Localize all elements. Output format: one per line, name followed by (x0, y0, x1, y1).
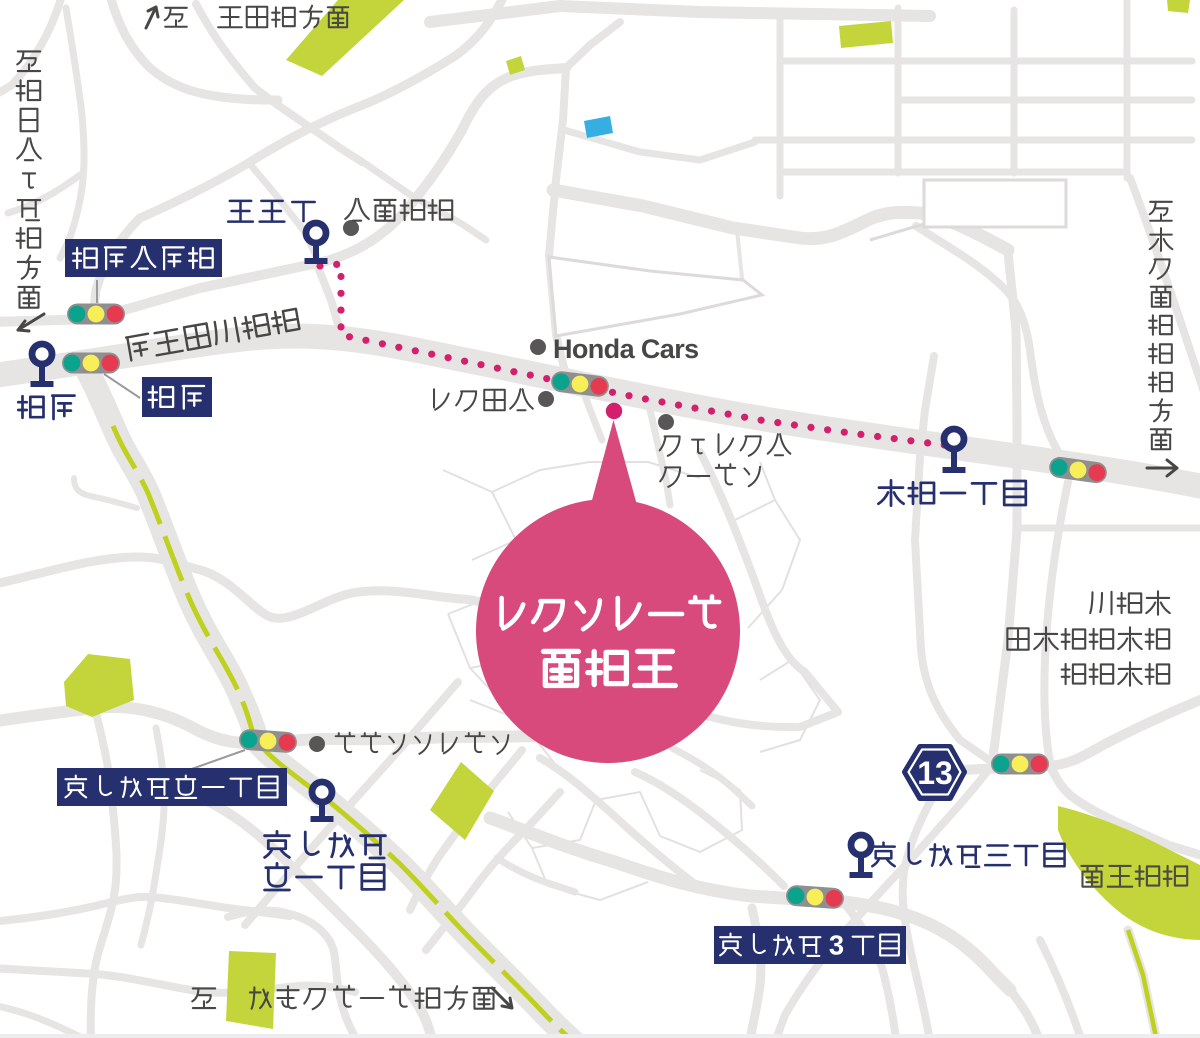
svg-text:Honda Cars: Honda Cars (553, 334, 699, 364)
svg-text:3: 3 (829, 929, 844, 960)
svg-text:13: 13 (917, 755, 953, 791)
